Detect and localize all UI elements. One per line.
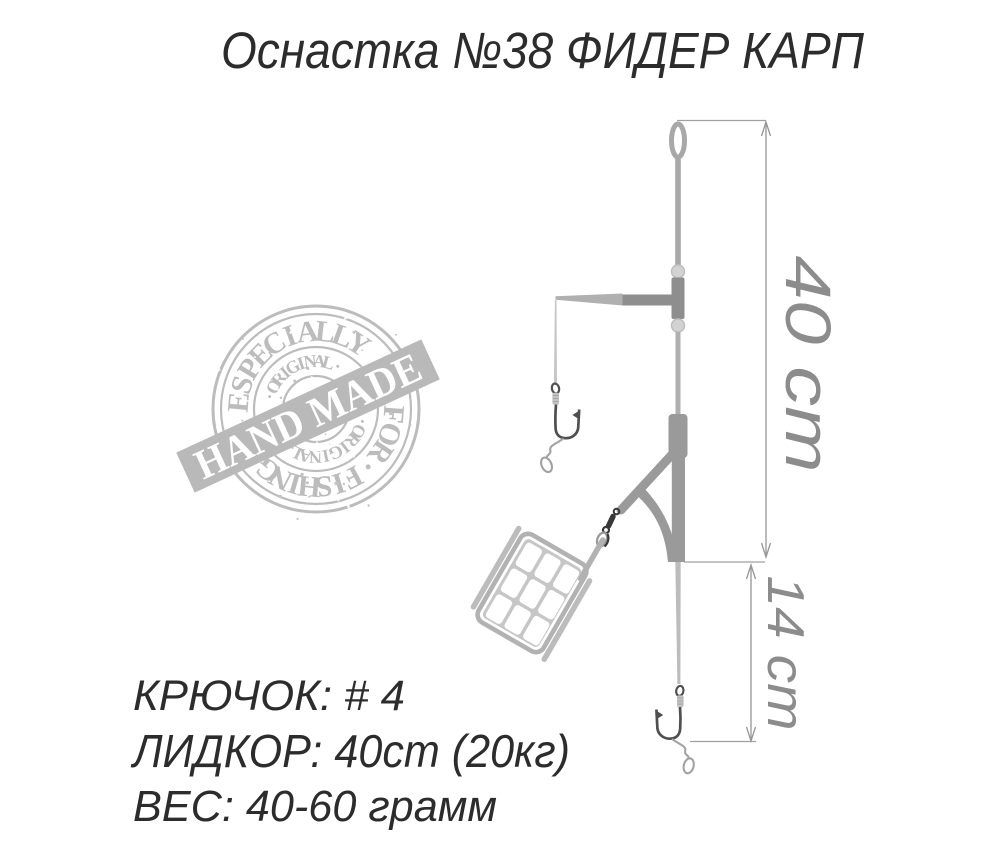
- svg-text:40 cm: 40 cm: [772, 256, 844, 473]
- svg-text:Оснастка №38 ФИДЕР КАРП: Оснастка №38 ФИДЕР КАРП: [221, 22, 864, 79]
- svg-text:ЛИДКОР: 40cm (20кг): ЛИДКОР: 40cm (20кг): [130, 725, 570, 777]
- svg-text:КРЮЧОК: # 4: КРЮЧОК: # 4: [133, 672, 405, 720]
- svg-text:ВЕС: 40-60 грамм: ВЕС: 40-60 грамм: [133, 782, 497, 831]
- svg-text:14 cm: 14 cm: [756, 576, 814, 731]
